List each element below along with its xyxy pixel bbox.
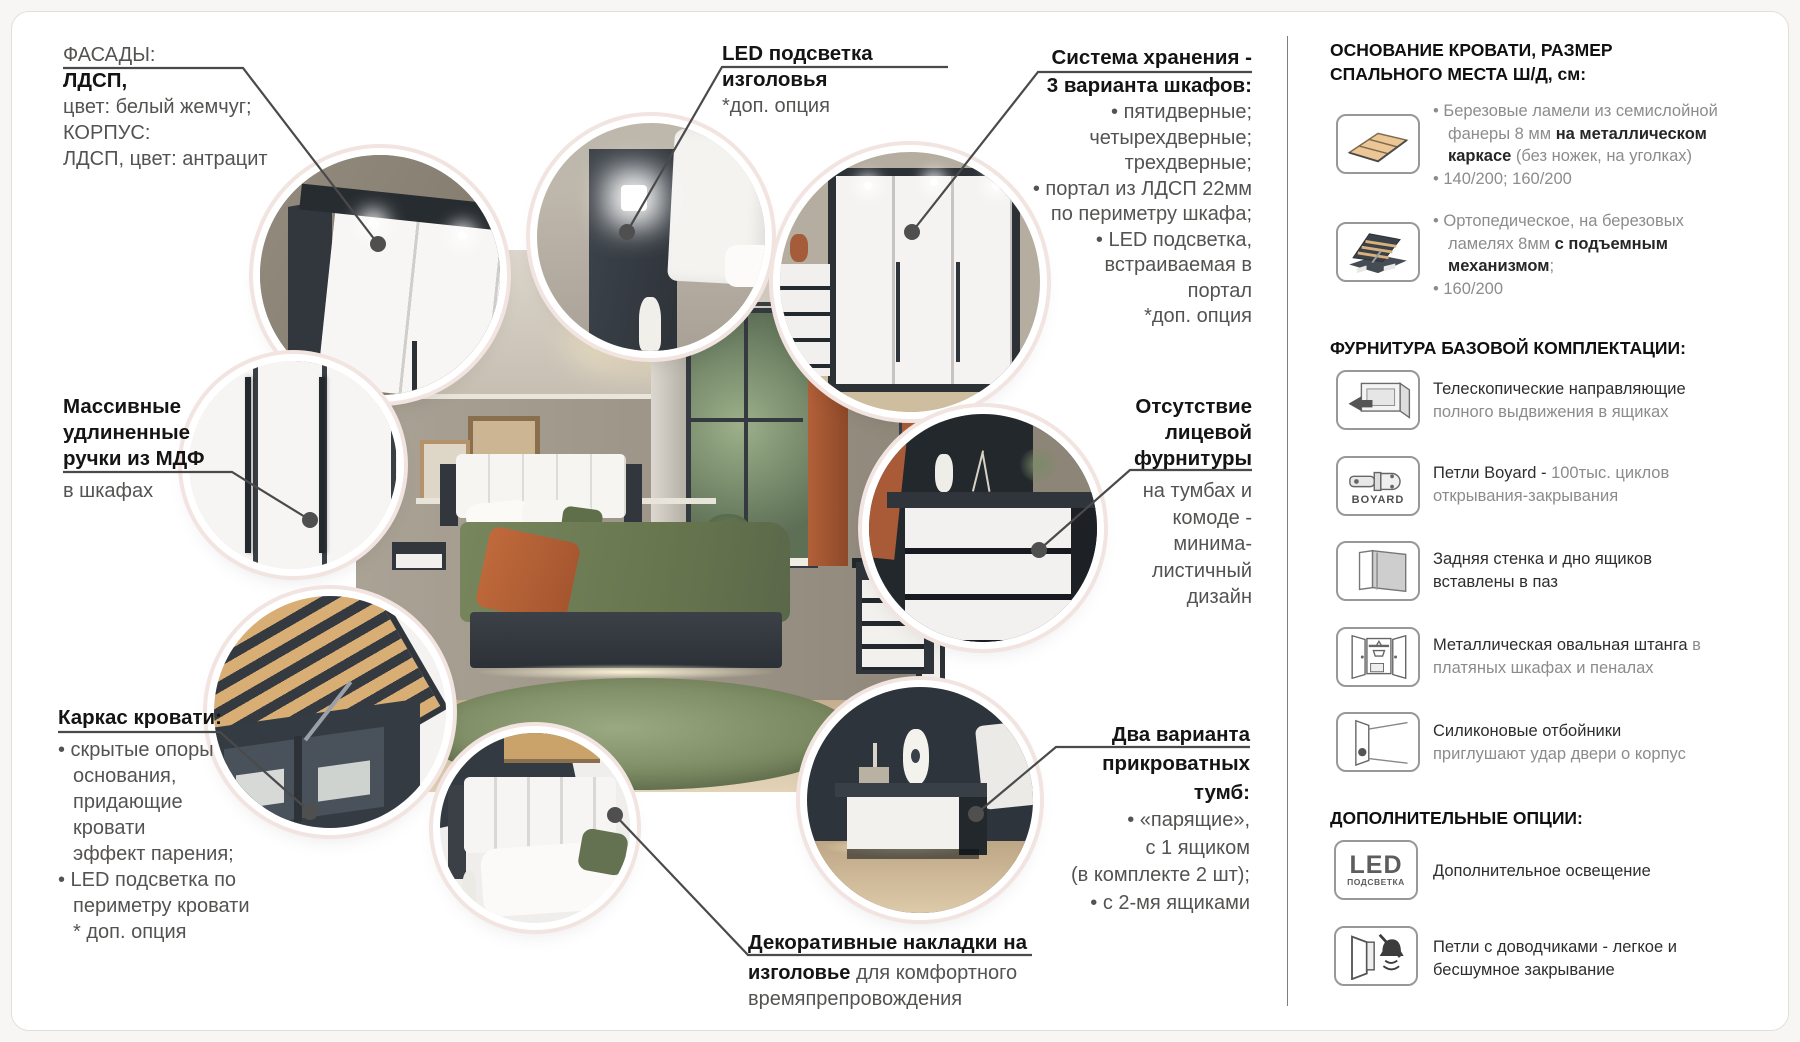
led-spot (368, 219, 378, 229)
drawer-slide-icon (1336, 370, 1420, 430)
nightstand-drawer (847, 797, 959, 849)
furniture-infographic: ФАСАДЫ: ЛДСП, цвет: белый жемчуг; КОРПУС… (0, 0, 1800, 1042)
callout-handles: Массивные удлиненные ручки из МДФ в шкаф… (63, 394, 205, 504)
callout-headboard-pads: Декоративные накладки на изголовье для к… (748, 930, 1027, 1012)
led-light-niche (621, 185, 647, 211)
dresser-top (887, 492, 1097, 508)
sidebar-furniture-item-4: Металлическая овальная штанга в платяных… (1433, 634, 1763, 679)
green-cushion (577, 827, 630, 876)
sidebar-header-base: ОСНОВАНИЕ КРОВАТИ, РАЗМЕР СПАЛЬНОГО МЕСТ… (1330, 38, 1770, 86)
silicone-bumper-icon (1336, 712, 1420, 772)
led-spot (864, 182, 872, 190)
pillow (725, 245, 765, 287)
callout-bed-frame: Каркас кровати: • скрытые опоры основани… (58, 705, 249, 945)
callout-storage: Система хранения - 3 варианта шкафов: • … (992, 44, 1252, 330)
nightstand-top (835, 783, 987, 797)
window-bar-vertical (744, 313, 748, 553)
callout-circle-led-headboard (537, 123, 765, 351)
decor-vase (790, 234, 808, 262)
led-spot (458, 231, 467, 240)
sidebar-header-furniture: ФУРНИТУРА БАЗОВОЙ КОМПЛЕКТАЦИИ: (1330, 336, 1770, 360)
decor-plant (1019, 448, 1059, 482)
white-facade-doors (317, 204, 500, 395)
soft-close-hinge-icon (1334, 926, 1418, 986)
callout-circle-headboard-pads (440, 733, 630, 923)
vase (639, 297, 661, 351)
vase (462, 871, 476, 915)
led-badge-icon: LED ПОДСВЕТКА (1334, 840, 1418, 900)
vertical-divider (1287, 36, 1288, 1006)
mdf-long-handle (319, 377, 325, 553)
chest-of-drawers (780, 264, 830, 376)
headboard-side-right (624, 464, 642, 526)
sidebar-base-item-2: • Ортопедическое, на березовых ламелях 8… (1433, 210, 1763, 300)
sidebar-furniture-item-5: Силиконовые отбойники приглушают удар дв… (1433, 720, 1763, 765)
door-handle (412, 341, 417, 395)
bed-base (470, 612, 782, 668)
sidebar-option-item-1: Дополнительное освещение (1433, 860, 1763, 883)
window-bar-horizontal (691, 418, 803, 422)
panel-groove-icon (1336, 541, 1420, 601)
sidebar-furniture-item-1: Телескопические направляющие полного выд… (1433, 378, 1763, 423)
long-handle (956, 262, 960, 362)
callout-circle-no-hardware (869, 414, 1097, 642)
long-handle (896, 262, 900, 362)
facades-material: ЛДСП, (63, 68, 268, 94)
diffuser-sticks (982, 452, 991, 492)
dresser-drawers-plain (905, 508, 1071, 642)
callout-led-headboard: LED подсветка изголовья *доп. опция (722, 41, 873, 119)
sidebar-option-item-2: Петли с доводчиками - легкое и бесшумное… (1433, 936, 1763, 981)
led-spot (930, 178, 938, 186)
sidebar-furniture-item-3: Задняя стенка и дно ящиков вставлены в п… (1433, 548, 1763, 593)
lift-bed-icon (1336, 222, 1420, 282)
mdf-long-handle (245, 377, 251, 553)
decor-vase (935, 454, 953, 492)
callout-facades: ФАСАДЫ: ЛДСП, цвет: белый жемчуг; КОРПУС… (63, 42, 268, 172)
sidebar-header-options: ДОПОЛНИТЕЛЬНЫЕ ОПЦИИ: (1330, 806, 1770, 830)
boyard-brand-label: BOYARD (1352, 494, 1405, 506)
callout-circle-nightstands (807, 687, 1033, 913)
callout-circle-facades (260, 155, 500, 395)
sidebar-base-item-1: • Березовые ламели из семислойной фанеры… (1433, 100, 1763, 190)
callout-circle-handles (189, 361, 397, 569)
bed-box-divider (294, 735, 302, 822)
callout-no-hardware: Отсутствие лицевой фурнитуры на тумбах и… (1072, 394, 1252, 611)
wardrobe-doors (836, 176, 1012, 384)
wardrobe-rail-icon (1336, 627, 1420, 687)
nightstand-side (959, 797, 987, 855)
sidebar-furniture-item-2: Петли Boyard - 100тыс. циклов открывания… (1433, 462, 1763, 507)
headboard-panel (589, 149, 677, 351)
floating-nightstand-drawer (396, 554, 442, 568)
facades-title: ФАСАДЫ: (63, 42, 268, 68)
slat-base-icon (1336, 114, 1420, 174)
wall-art (504, 733, 600, 763)
callout-nightstands: Два варианта прикроватных тумб: • «парящ… (1020, 720, 1250, 917)
boyard-hinge-icon: BOYARD (1336, 456, 1420, 516)
